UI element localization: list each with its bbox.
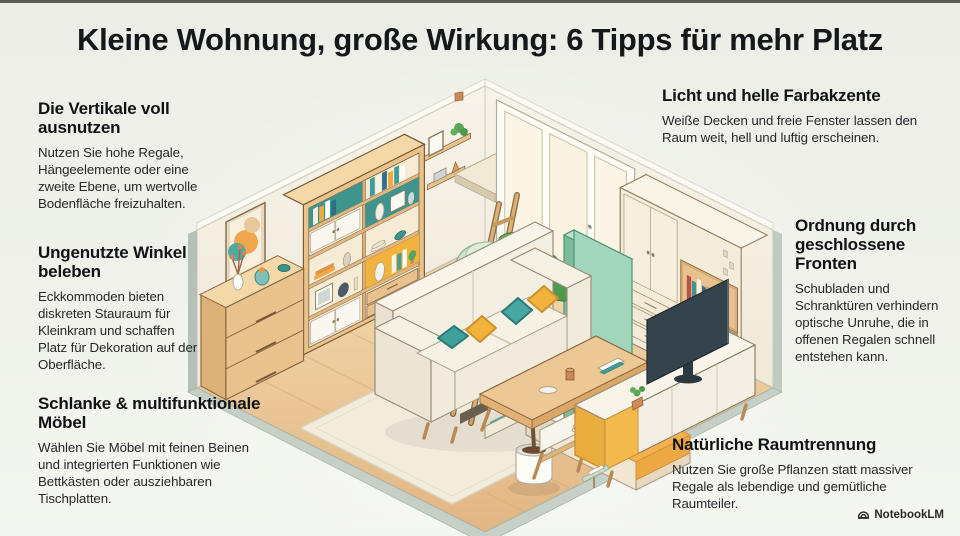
tip-body: Schubladen und Schranktüren verhindern o… <box>795 280 943 365</box>
tip-body: Nutzen Sie große Pflanzen statt massiver… <box>672 461 924 512</box>
watermark: NotebookLM <box>857 508 944 521</box>
top-border-strip <box>0 0 960 3</box>
tip-vertical: Die Vertikale voll ausnutzen Nutzen Sie … <box>38 99 224 212</box>
tip-heading: Die Vertikale voll ausnutzen <box>38 99 224 137</box>
tip-corners: Ungenutzte Winkel beleben Eckkommoden bi… <box>38 243 188 373</box>
tip-heading: Ordnung durch geschlossene Fronten <box>795 216 947 273</box>
watermark-label: NotebookLM <box>874 509 944 521</box>
tip-room-divider: Natürliche Raumtrennung Nutzen Sie große… <box>672 435 934 512</box>
tip-closed-fronts: Ordnung durch geschlossene Fronten Schub… <box>795 216 947 365</box>
tip-body: Wählen Sie Möbel mit feinen Beinen und i… <box>38 439 254 507</box>
tip-light: Licht und helle Farbakzente Weiße Decken… <box>662 86 928 146</box>
tip-heading: Licht und helle Farbakzente <box>662 86 928 105</box>
tip-heading: Ungenutzte Winkel beleben <box>38 243 188 281</box>
tip-heading: Natürliche Raumtrennung <box>672 435 934 454</box>
wall-cut-edge-right <box>773 230 782 392</box>
infographic-canvas: Kleine Wohnung, große Wirkung: 6 Tipps f… <box>0 0 960 536</box>
tip-slim-furniture: Schlanke & multifunktionale Möbel Wählen… <box>38 394 266 507</box>
notebooklm-icon <box>857 508 870 521</box>
tip-heading: Schlanke & multifunktionale Möbel <box>38 394 266 432</box>
tip-body: Weiße Decken und freie Fenster lassen de… <box>662 112 924 146</box>
page-title: Kleine Wohnung, große Wirkung: 6 Tipps f… <box>0 22 960 58</box>
tip-body: Eckkommoden bieten diskreten Stauraum fü… <box>38 288 206 373</box>
tip-body: Nutzen Sie hohe Regale, Hängeelemente od… <box>38 144 210 212</box>
